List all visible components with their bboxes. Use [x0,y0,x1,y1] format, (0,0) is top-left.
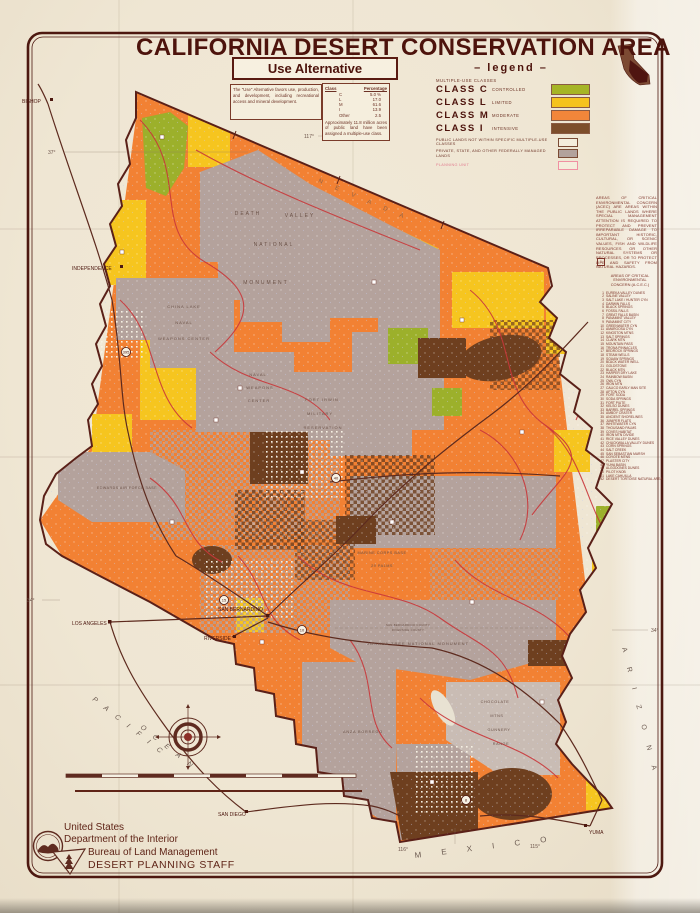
marine-base-label-2: 29 PALMS [371,564,393,568]
chocolate-label-1: CHOCOLATE [481,700,510,704]
arizona-label: A R I Z O N A [620,647,659,778]
legend-extra-swatch [558,149,578,158]
san-diego-label: SAN DIEGO [218,812,246,818]
legend-class-row: CLASS L LIMITED [436,96,590,109]
map-poster: 15 395 40 10 8 DEATH VALLEY NATIONAL MON… [0,0,700,913]
china-lake-label-2: NAVAL [175,320,193,325]
lat-34-west-label: 34° [27,598,35,604]
map-dot-texture [40,90,620,850]
legend-class-name: CLASS L [436,97,492,108]
legend-class-desc: CONTROLLED [492,87,540,92]
imprint-united-states: United States [64,822,124,833]
lon-116-label: 116° [398,847,408,853]
death-valley-label-4: MONUMENT [243,280,288,286]
interstate-10-number: 10 [300,628,305,633]
scale-bar [66,774,356,777]
lon-117-label: 117° [304,134,314,140]
pacific-label: P A C I F I C [91,696,167,757]
interstate-15-number: 15 [222,598,227,603]
road-la-sd [110,622,246,812]
percentage-cell: 2.5 [375,113,381,118]
san-bernardino-label: SAN BERNARDINO [218,607,263,613]
city-dot-bishop [50,98,53,101]
fort-irwin-label-3: RESERVATION [303,425,342,430]
legend-class-desc: INTENSIVE [492,126,540,131]
joshua-tree-label: JOSHUA TREE NATIONAL MONUMENT [367,641,469,646]
city-dot-san-bernardino [266,614,270,618]
county-label-2: RIVERSIDE COUNTY [392,628,424,632]
table-row: Other 2.5 [325,113,387,118]
lon-115-label: 115° [530,844,540,850]
chocolate-label-3: GUNNERY [487,728,510,732]
imprint-rule [75,790,362,792]
acec-marker-symbol: 1 [597,258,605,266]
legend-extras: PUBLIC LANDS NOT WITHIN SPECIFIC MULTIPL… [432,138,590,170]
legend-extra-label: PLANNING UNIT [436,163,558,168]
nwc-label-3: CENTER [248,398,270,403]
legend-extra-swatch [558,161,578,170]
los-angeles-label: LOS ANGELES [72,621,107,627]
independence-label: INDEPENDENCE [72,266,112,272]
anza-borrego-label: ANZA BORREGO [343,730,383,734]
acec-item-number: 52 [596,478,606,482]
acec-intro-text: AREAS OF CRITICAL ENVIRONMENTAL CONCERN … [596,196,657,270]
table-header: Class Percentage [325,86,387,91]
legend-extra-row: PUBLIC LANDS NOT WITHIN SPECIFIC MULTIPL… [436,138,590,147]
legend-class-row: CLASS I INTENSIVE [436,122,590,135]
legend-class-name: CLASS I [436,123,492,134]
nwc-label-1: NAVAL [249,372,267,377]
legend-color-swatch [551,110,590,121]
imprint-desert-planning-staff: DESERT PLANNING STAFF [88,859,235,871]
table-note: Approximately 11.8 million acres of publ… [325,120,387,137]
yuma-label: YUMA [589,830,604,836]
legend-extra-label: PUBLIC LANDS NOT WITHIN SPECIFIC MULTIPL… [436,138,558,147]
acec-list-title: AREAS OF CRITICAL ENVIRONMENTAL CONCERN … [605,274,655,288]
china-lake-label-3: WEAPONS CENTER [158,336,210,341]
legend-extra-swatch [558,138,578,147]
table-rows: C 5.0 % L 17.0 M 61.6 I 13.9 [325,92,387,118]
chocolate-label-4: RANGE [493,742,510,746]
legend-class-row: CLASS C CONTROLLED [436,83,590,96]
legend-color-swatch [551,84,590,95]
col-class: Class [325,86,336,91]
legend-color-swatch [551,97,590,108]
imprint-department: Department of the Interior [64,834,178,845]
us-395-number: 395 [123,350,130,355]
lat-37-label: 37° [48,150,56,156]
legend-class-desc: LIMITED [492,100,540,105]
city-dot-riverside [233,635,236,638]
class-cell: Other [339,113,350,118]
legend-classes: CLASS C CONTROLLED CLASS L LIMITED CLASS… [432,83,590,135]
compass-rose-icon [155,704,221,770]
acec-panel: AREAS OF CRITICAL ENVIRONMENTAL CONCERN … [596,196,657,482]
cdca-region [40,90,642,850]
acec-item-name: DESERT TORTOISE NATURAL AREA [606,478,662,482]
bishop-label: BISHOP [22,99,42,105]
edwards-afb-label: EDWARDS AIR FORCE BASE [97,486,157,490]
marine-base-label-1: MARINE CORPS BASE [357,551,406,555]
alternative-description: The "Use" Alternative favors use, produc… [230,84,322,120]
legend-extra-label: PRIVATE, STATE, AND OTHER FEDERALLY MANA… [436,149,558,158]
china-lake-label-1: CHINA LAKE [167,304,201,309]
imprint-bureau: Bureau of Land Management [88,847,218,858]
county-label-1: SAN BERNARDINO COUNTY [386,623,430,627]
chocolate-label-2: MTNS [490,714,503,718]
lat-34-east-label: 34° [651,628,659,634]
legend-class-desc: MODERATE [492,113,540,118]
legend: – legend – MULTIPLE-USE CLASSES CLASS C … [432,62,590,170]
legend-extra-row: PLANNING UNIT [436,161,590,170]
acec-list-item: 52 DESERT TORTOISE NATURAL AREA [596,478,657,482]
col-percentage: Percentage [364,86,387,91]
legend-extra-row: PRIVATE, STATE, AND OTHER FEDERALLY MANA… [436,149,590,158]
city-dot-yuma [584,824,587,827]
legend-class-name: CLASS M [436,110,492,121]
fort-irwin-label-1: FORT IRWIN [305,397,339,402]
legend-color-swatch [551,123,590,134]
paper-edge-shadow [0,898,700,913]
fort-irwin-label-2: MILITARY [307,411,333,416]
city-dot-los-angeles [108,620,112,624]
death-valley-label-3: NATIONAL [254,242,295,248]
nwc-label-2: WEAPONS [246,385,273,390]
legend-class-row: CLASS M MODERATE [436,109,590,122]
class-percentage-table: Class Percentage C 5.0 % L 17.0 M 61.6 [322,83,390,141]
death-valley-label-1: DEATH [235,211,262,217]
legend-title: – legend – [432,62,590,74]
city-dot-independence [120,265,123,268]
acec-list: 1 EUREKA VALLEY DUNES 2 SALINE VALLEY 3 … [596,292,657,482]
alternative-name-box: Use Alternative [232,57,398,80]
death-valley-label-2: VALLEY [285,213,316,219]
interstate-40-number: 40 [334,476,339,481]
legend-class-name: CLASS C [436,84,492,95]
riverside-label: RIVERSIDE [204,636,232,642]
